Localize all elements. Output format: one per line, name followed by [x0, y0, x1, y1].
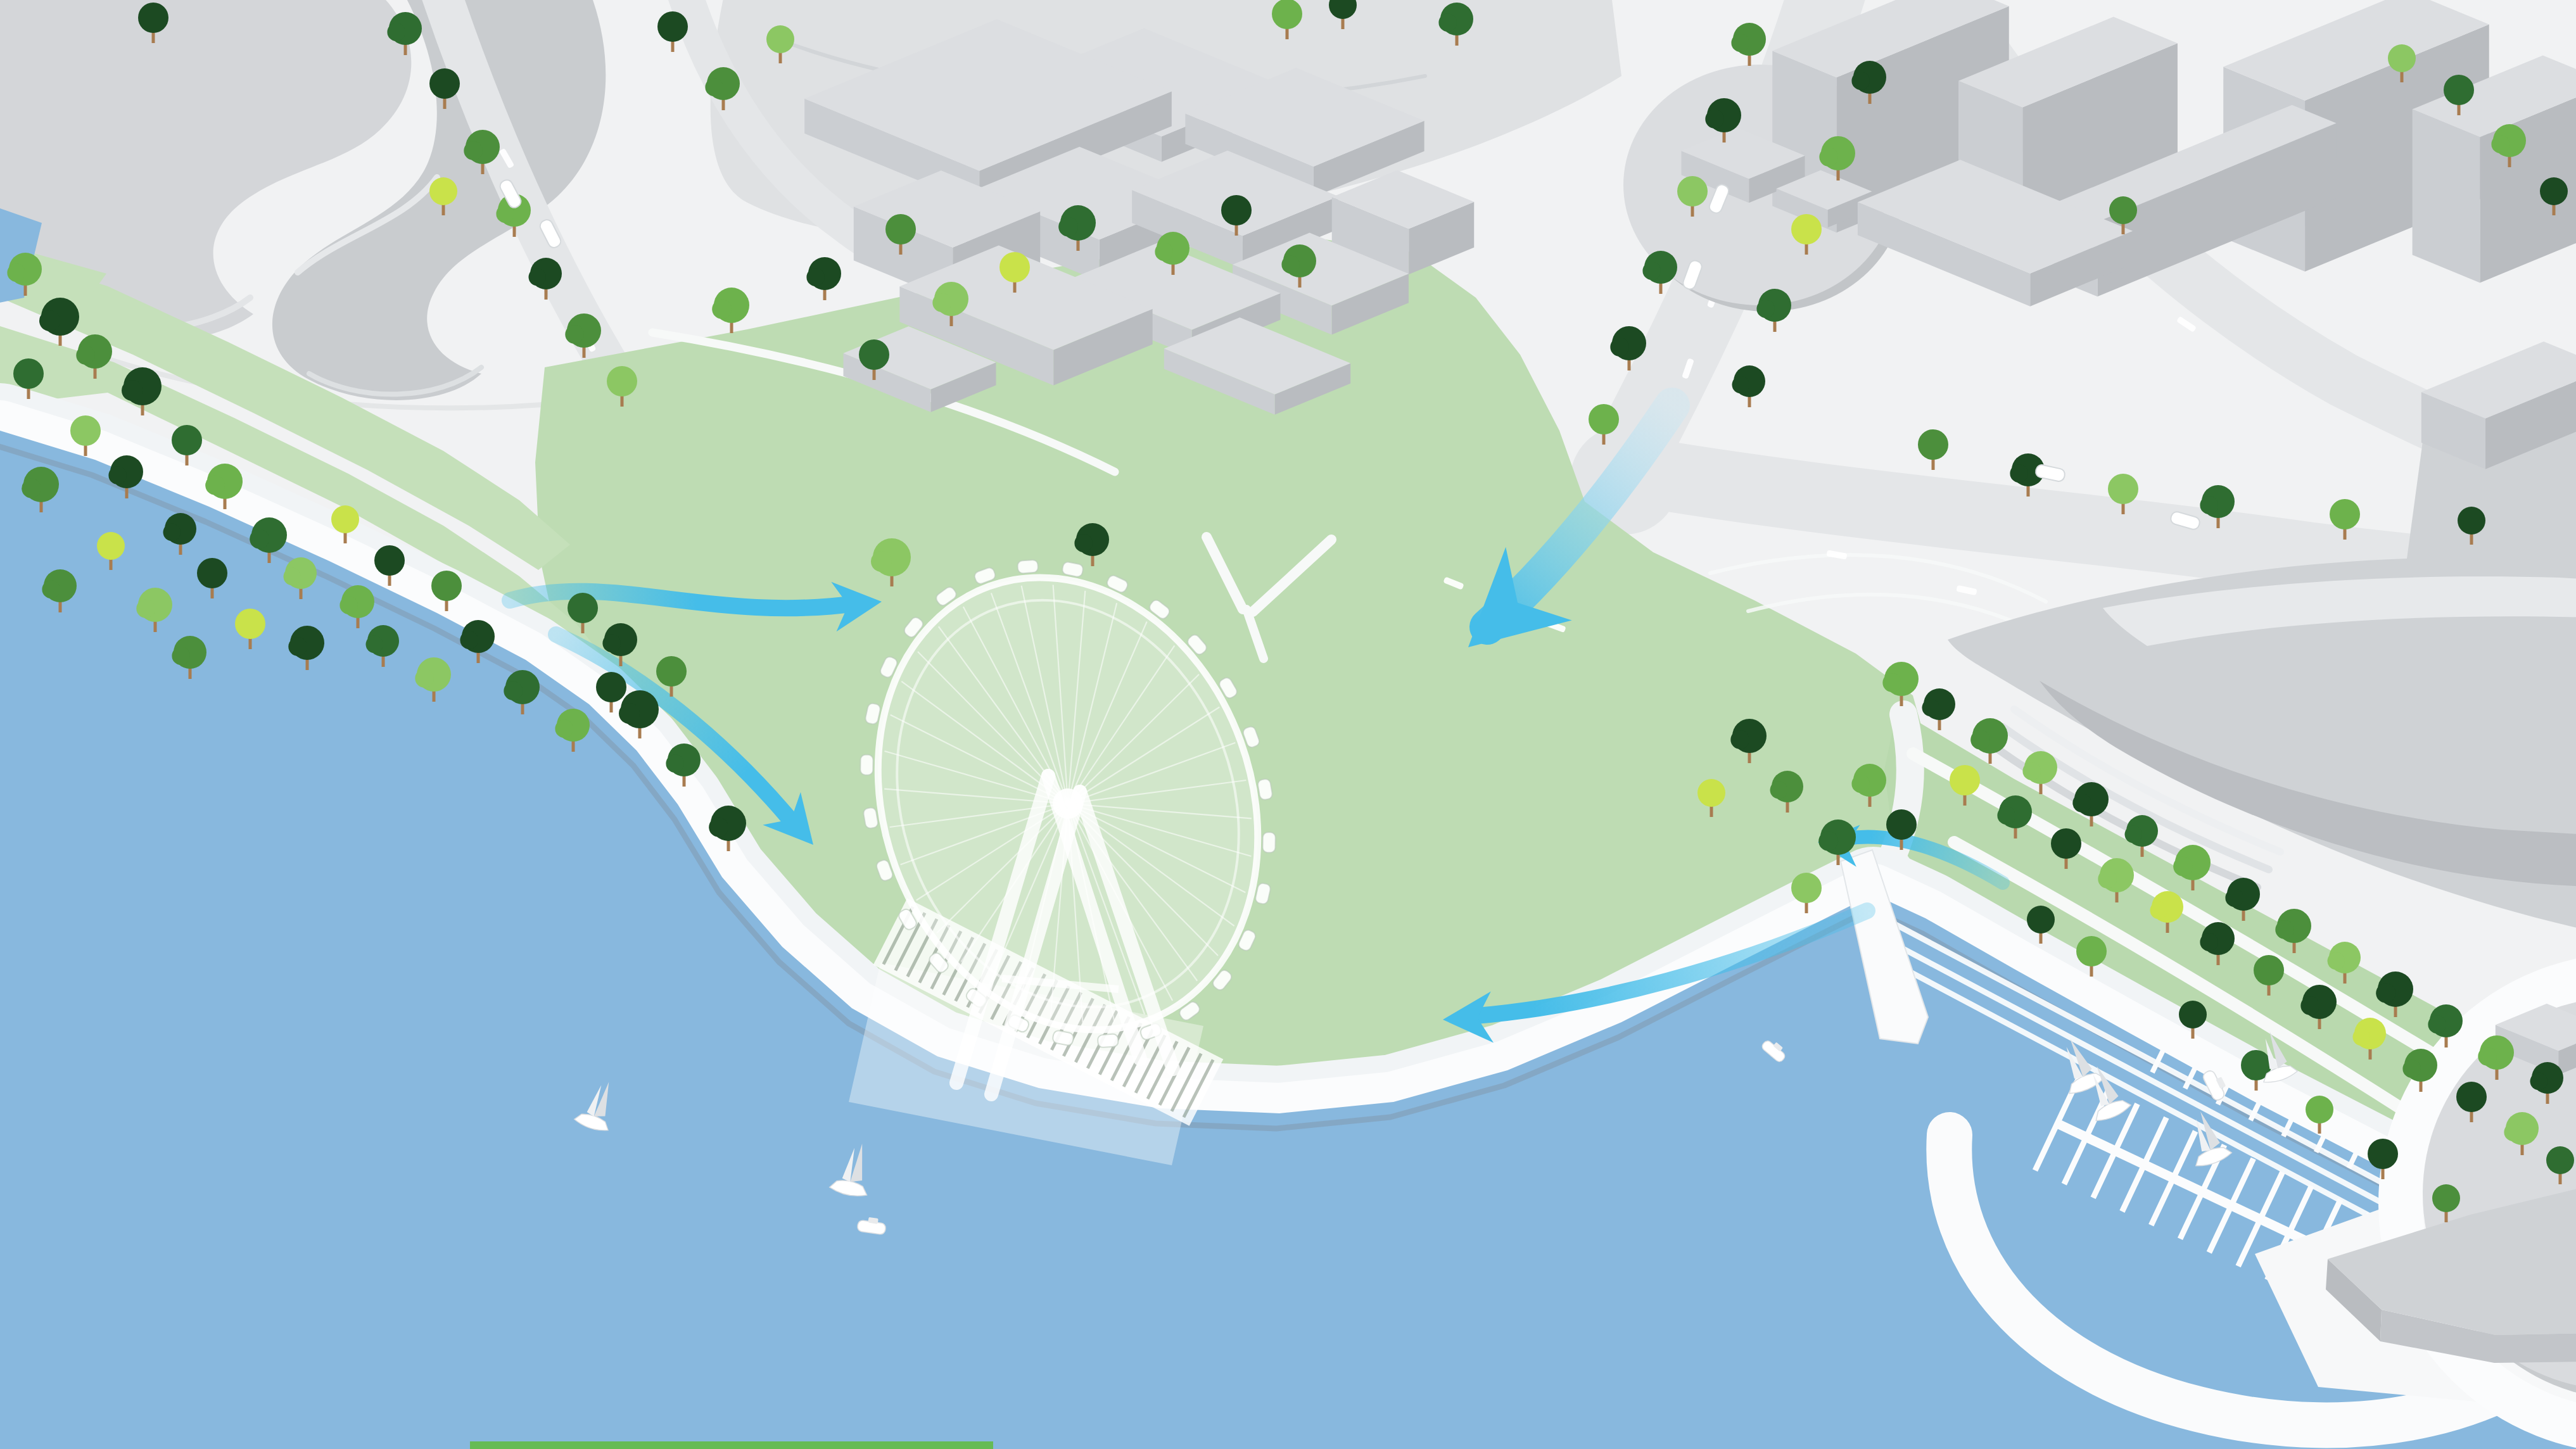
- masterplan-canvas: [0, 0, 2576, 1449]
- wheel-capsule: [1098, 1034, 1119, 1047]
- bottom-edge-green-strip: [470, 1441, 993, 1449]
- wheel-capsule: [860, 755, 873, 775]
- wheel-capsule: [1262, 832, 1276, 852]
- bottom-strip: [470, 1441, 993, 1449]
- wheel-capsule: [1017, 560, 1038, 574]
- masterplan-figure: [0, 0, 2576, 1449]
